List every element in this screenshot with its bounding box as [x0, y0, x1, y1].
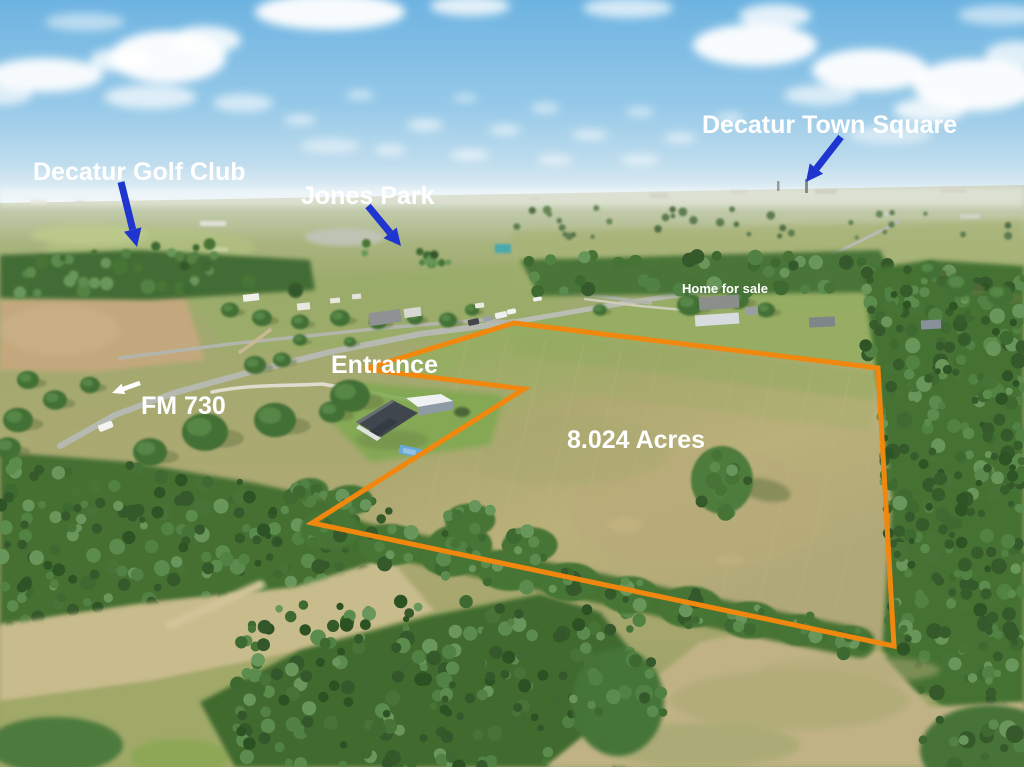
svg-text:Entrance: Entrance: [331, 351, 438, 379]
svg-text:Decatur Town Square: Decatur Town Square: [702, 111, 957, 139]
svg-text:FM 730: FM 730: [141, 392, 226, 420]
svg-text:Decatur Golf Club: Decatur Golf Club: [33, 158, 246, 186]
svg-text:Home for sale: Home for sale: [682, 281, 768, 296]
svg-text:8.024 Acres: 8.024 Acres: [567, 426, 705, 454]
svg-text:Jones Park: Jones Park: [301, 182, 435, 210]
